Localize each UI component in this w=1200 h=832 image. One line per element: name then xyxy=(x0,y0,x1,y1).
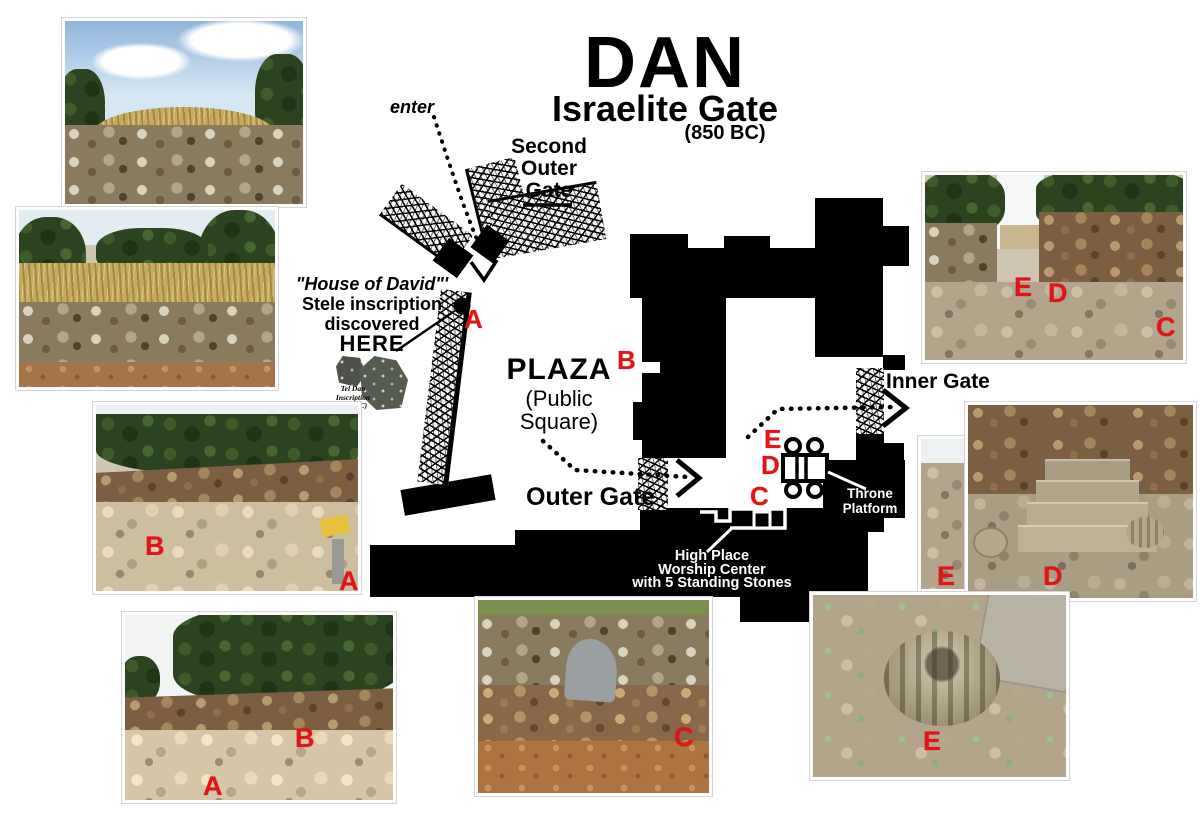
photo-high-place: C xyxy=(475,597,712,796)
photo7-marker-d: D xyxy=(1043,563,1063,590)
map-marker-a: A xyxy=(464,306,483,332)
enter-route-dotted-line xyxy=(434,117,485,258)
inner-gate-label: Inner Gate xyxy=(886,370,990,394)
photo-ruins-overview xyxy=(62,18,306,207)
throne-platform-label: Throne Platform xyxy=(828,486,912,516)
column-base-icon xyxy=(808,439,822,453)
photo-throne-platform-steps: D xyxy=(965,402,1196,601)
map-marker-c: C xyxy=(750,483,769,509)
high-place-niche-door xyxy=(754,512,770,528)
inner-gate-arrowhead-icon xyxy=(883,390,906,426)
second-outer-gate-line1: Second xyxy=(499,136,599,158)
map-marker-b: B xyxy=(617,347,636,373)
photo-decorated-column-base: E xyxy=(810,592,1069,780)
column-base-left xyxy=(973,527,1009,558)
step-upper xyxy=(1036,480,1140,503)
photo-plaza-gateway: E D C xyxy=(922,172,1186,363)
stone-wall-right xyxy=(1039,212,1186,286)
photo6-marker-e: E xyxy=(1014,274,1032,301)
enter-label: enter xyxy=(390,97,434,118)
column-base-right xyxy=(1126,517,1164,548)
photo-plaza-wall: B A xyxy=(93,402,361,594)
sky xyxy=(921,439,971,466)
photo-wall-corner: B A xyxy=(122,612,396,803)
throne-platform-line1: Throne xyxy=(828,486,912,501)
second-outer-gate-label: Second Outer Gate xyxy=(499,136,599,202)
page-date: (850 BC) xyxy=(575,122,875,145)
photo5-marker-c: C xyxy=(674,724,694,751)
enter-route-arrowhead-icon xyxy=(471,260,497,280)
cobble-pavement xyxy=(96,502,358,591)
stele-note-line1: "House of David"' xyxy=(281,274,463,294)
photo-sliver-marker-e: E xyxy=(937,563,955,590)
stele-note-line2: Stele inscription xyxy=(281,294,463,314)
column-base-icon xyxy=(786,483,800,497)
photo8-marker-e: E xyxy=(923,728,941,755)
photo3-marker-a: A xyxy=(339,568,359,594)
photo3-marker-b: B xyxy=(145,533,165,560)
second-outer-gate-line2: Outer xyxy=(499,158,599,180)
map-marker-e: E xyxy=(764,426,781,452)
outer-gate-arrowhead-icon xyxy=(677,460,699,496)
high-place-label: High Place Worship Center with 5 Standin… xyxy=(618,550,806,591)
distant-ruins xyxy=(1000,225,1039,249)
throne-platform-line2: Platform xyxy=(828,501,912,516)
column-base-ridges xyxy=(884,631,1000,726)
plaza-title: PLAZA xyxy=(498,353,620,387)
column-base-icon xyxy=(786,439,800,453)
plaza-label: PLAZA (Public Square) xyxy=(498,353,620,433)
stone-walls xyxy=(19,302,275,364)
second-outer-gate-line3: Gate xyxy=(499,180,599,202)
column-base-icon xyxy=(808,483,822,497)
photo6-marker-c: C xyxy=(1156,314,1176,341)
map-marker-d: D xyxy=(761,452,780,478)
photo6-marker-d: D xyxy=(1048,280,1068,307)
cobble-pavement xyxy=(125,730,393,800)
dirt-path xyxy=(19,362,275,387)
photo-walls-in-grass xyxy=(16,207,278,390)
stele-note-line4: HERE xyxy=(281,334,463,354)
stele-note: "House of David"' Stele inscription disc… xyxy=(281,274,463,354)
high-place-line3: with 5 Standing Stones xyxy=(618,577,806,591)
excavated-ruins xyxy=(65,125,303,204)
high-place-niche-outline xyxy=(700,509,785,528)
photo4-marker-a: A xyxy=(203,773,223,800)
plaza-sub-line1: (Public xyxy=(498,387,620,410)
infographic-dan-israelite-gate: DAN Israelite Gate (850 BC) xyxy=(0,0,1200,832)
plaza-sub-line2: Square) xyxy=(498,410,620,433)
outer-gate-label: Outer Gate xyxy=(526,483,655,512)
outer-gate-route-dotted-line xyxy=(543,441,688,477)
photo4-marker-b: B xyxy=(295,725,315,752)
step-top xyxy=(1045,459,1131,482)
